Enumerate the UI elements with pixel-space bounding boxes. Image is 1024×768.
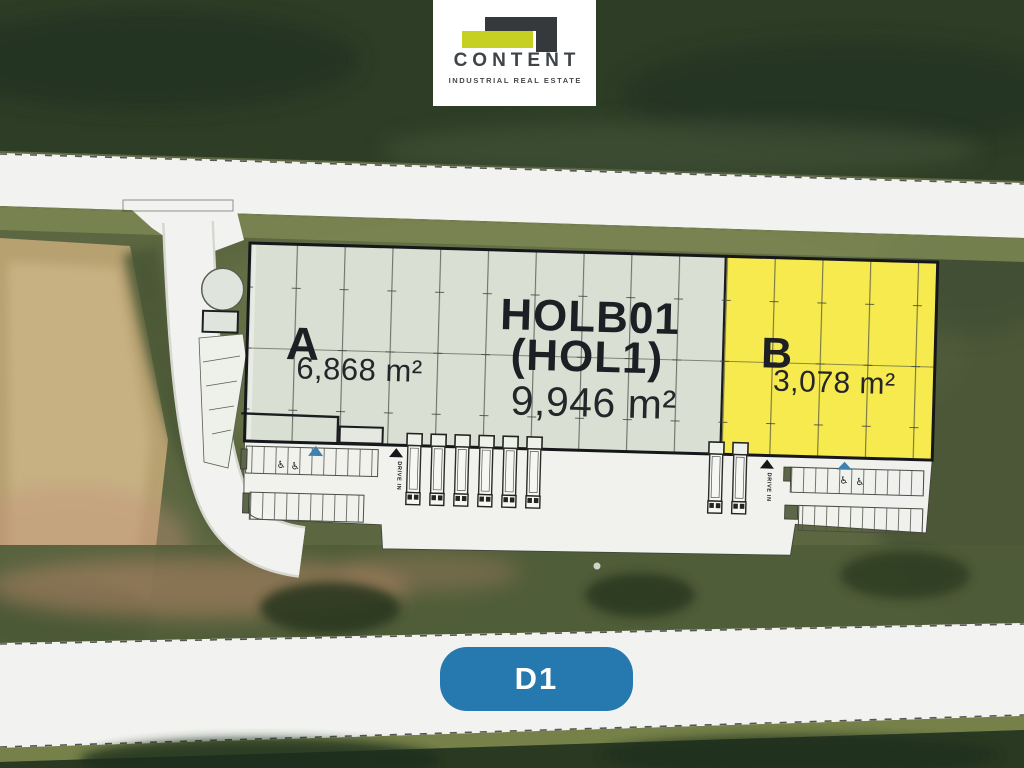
accessible-parking-icon: ♿ [277,460,286,471]
curb-block [784,467,791,481]
truck [707,442,724,513]
highway-d1-label: D1 [515,661,559,697]
sprinkler-tank [201,268,244,311]
truck [525,437,542,508]
parking-row [246,446,379,477]
truck [429,434,446,505]
logo-mark-dark-icon [536,17,557,52]
unit-b-area: 3,078 m² [773,365,896,401]
truck [731,443,748,514]
hall-code-line2: (HOL1) [510,330,664,383]
truck [405,433,422,504]
ground-dot [594,563,601,570]
plan-group: ♿ ♿ ♿ ♿ DRIVE IN DRIVE IN [195,242,938,564]
accessible-parking-icon: ♿ [855,477,864,488]
tree-blob [260,582,400,634]
brand-logo[interactable]: CONTENT INDUSTRIAL REAL ESTATE [433,0,596,106]
highway-d1-badge[interactable]: D1 [440,647,633,711]
truck [477,435,494,506]
tree-blob [840,551,970,599]
curb-block [785,505,798,519]
hall-total-area: 9,946 m² [510,377,677,428]
truck [501,436,518,507]
curb-block [242,493,249,513]
site-plan-page: ♿ ♿ ♿ ♿ DRIVE IN DRIVE IN [0,0,1024,768]
truck [453,435,470,506]
tree-blob [585,573,695,617]
hall-annex [339,427,382,444]
logo-mark-green-icon [462,31,533,48]
parking-row [249,492,364,522]
drive-in-label: DRIVE IN [395,461,402,490]
accessible-parking-icon: ♿ [291,461,300,472]
drive-in-label: DRIVE IN [765,472,772,501]
parking-row [798,505,923,533]
accessible-parking-icon: ♿ [839,476,848,487]
curb-block [241,449,248,469]
brand-tagline: INDUSTRIAL REAL ESTATE [433,76,596,85]
brand-name: CONTENT [433,50,596,72]
unit-a-area: 6,868 m² [296,350,423,389]
pump-house [203,311,239,333]
